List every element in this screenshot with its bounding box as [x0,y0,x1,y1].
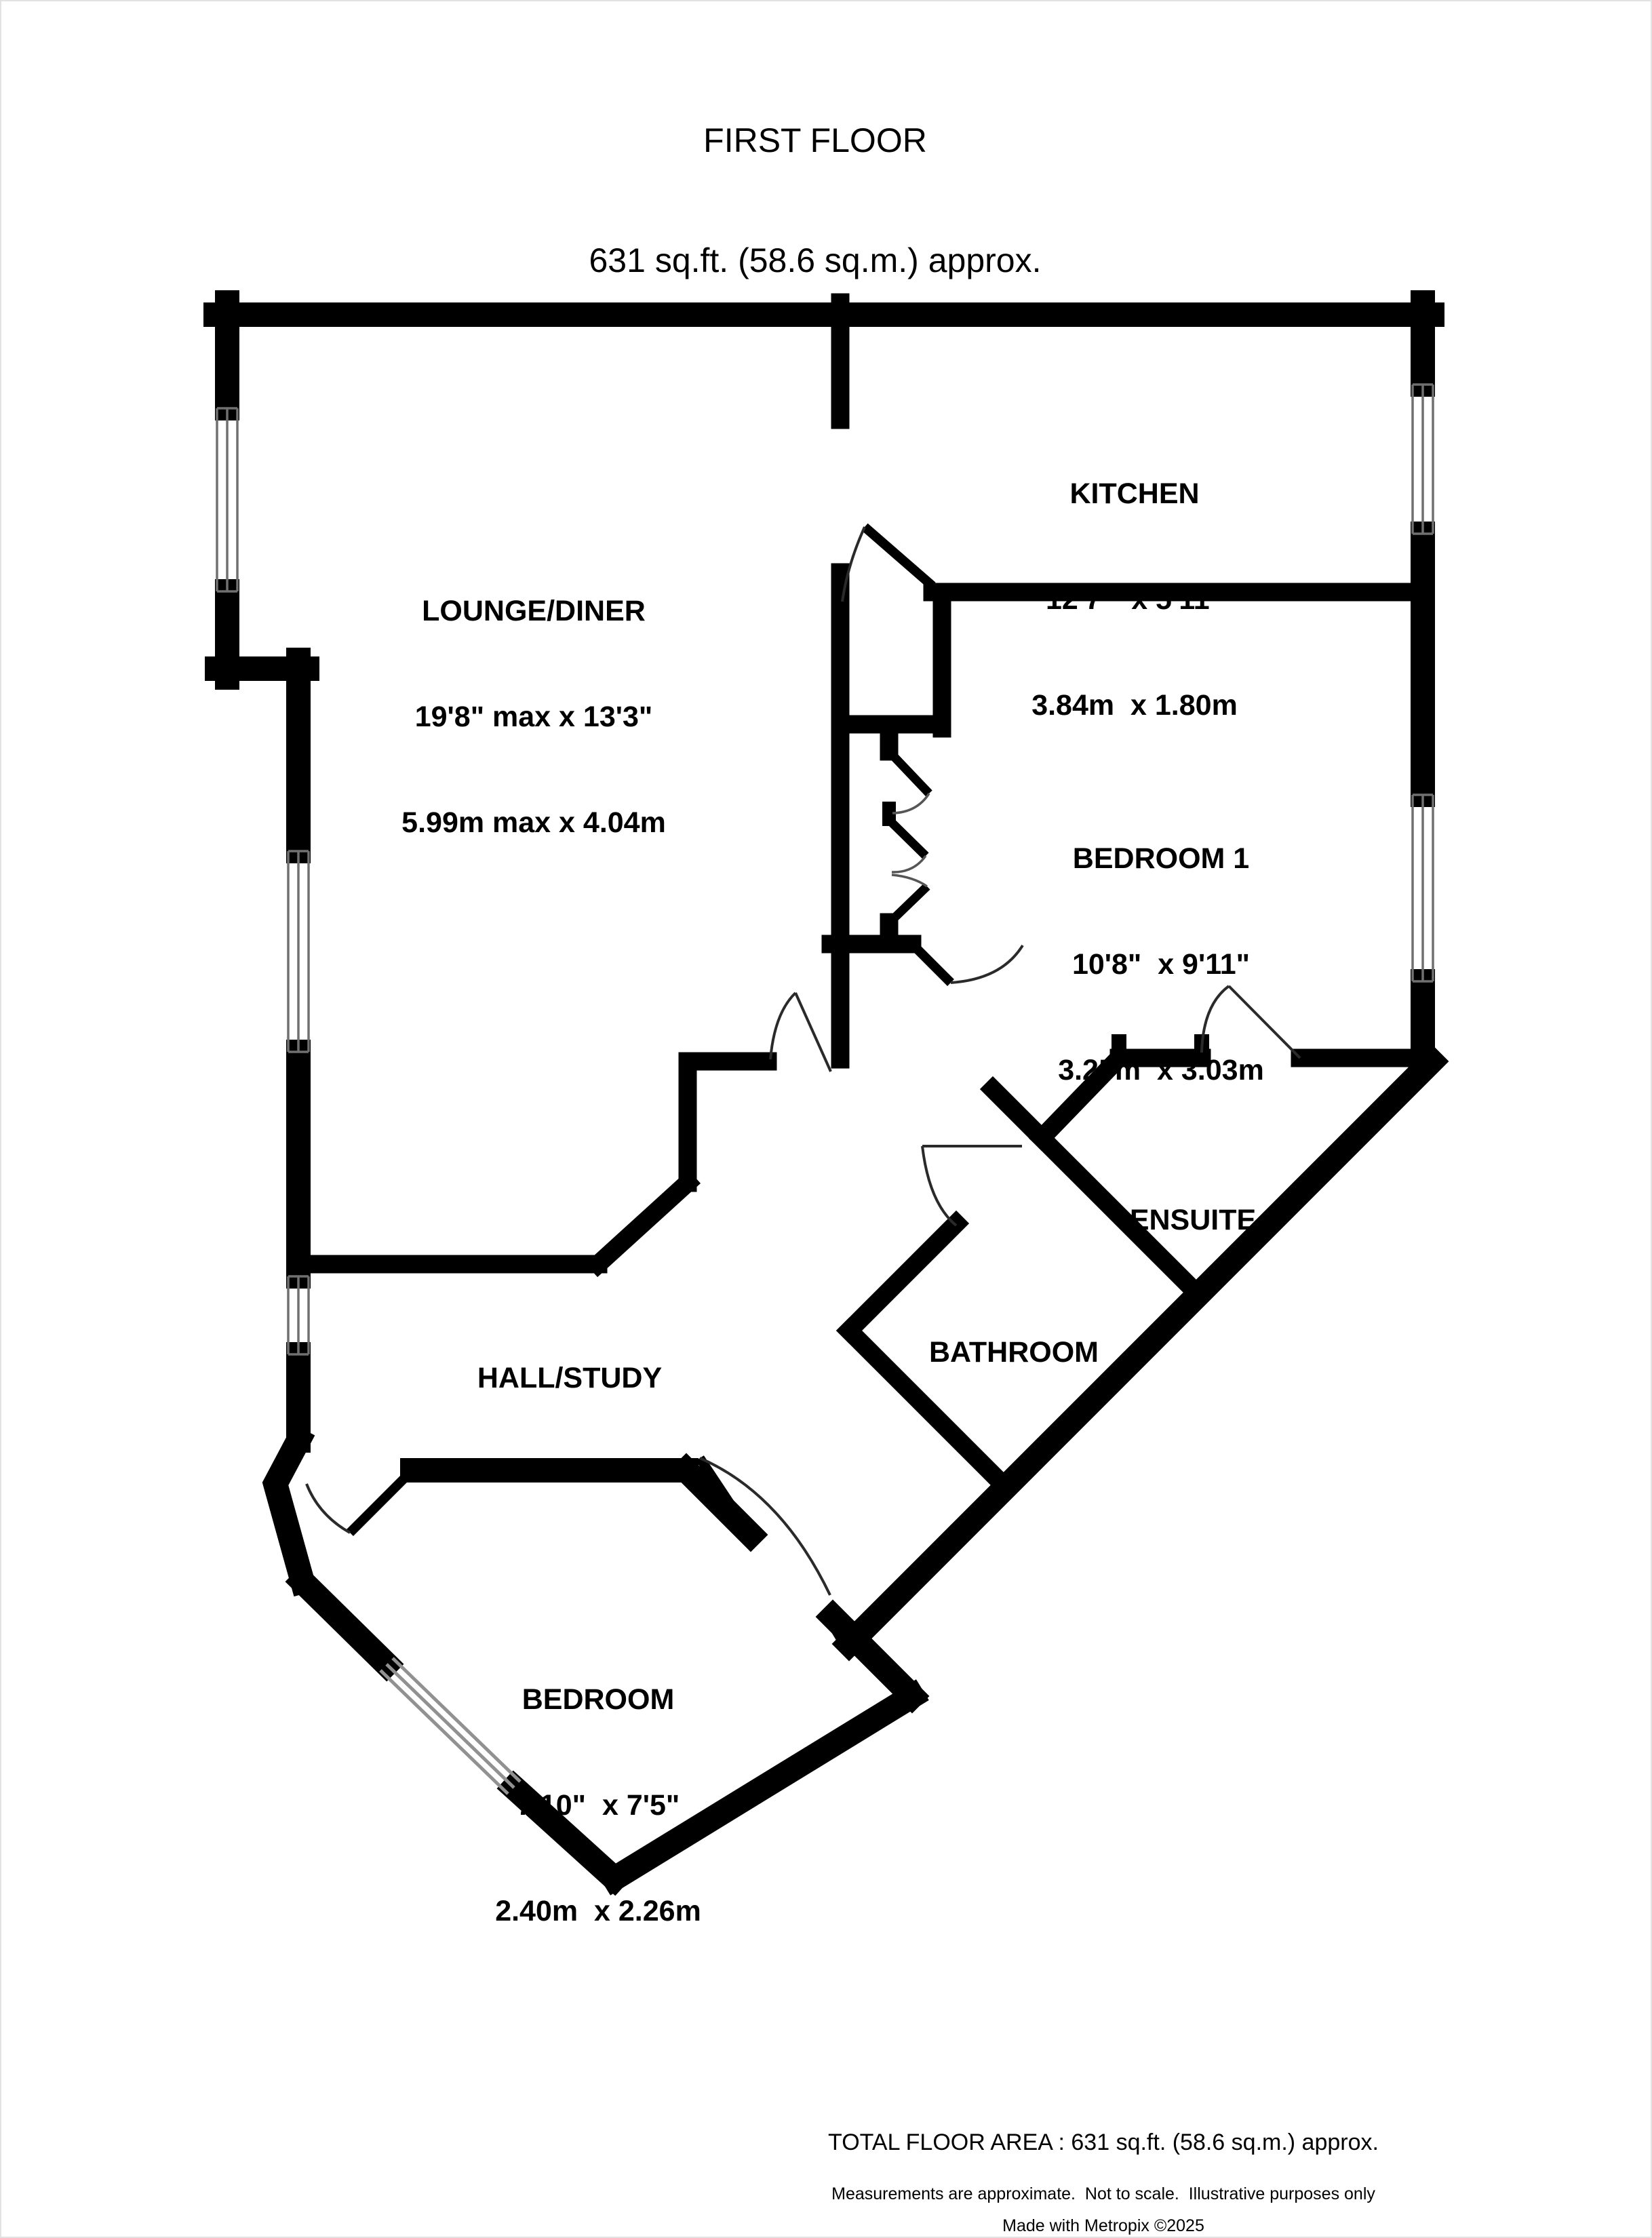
room-dims-metric: 3.25m x 3.03m [1058,1053,1264,1088]
room-label-bedroom1: BEDROOM 1 10'8" x 9'11" 3.25m x 3.03m [1058,770,1264,1158]
page-title: FIRST FLOOR [589,121,1042,161]
room-name: BEDROOM [495,1682,701,1717]
window-right-bedroom1-icon [1413,795,1433,981]
bedroom2-door-leaf-icon [350,1470,412,1533]
room-label-kitchen: KITCHEN 12'7" x 5'11" 3.84m x 1.80m [1031,406,1238,793]
footer-total-area: TOTAL FLOOR AREA : 631 sq.ft. (58.6 sq.m… [828,2129,1379,2156]
bathroom-door-swing-icon [922,1146,956,1225]
room-dims-metric: 3.84m x 1.80m [1031,688,1238,723]
floorplan-page: FIRST FLOOR 631 sq.ft. (58.6 sq.m.) appr… [0,0,1652,2238]
wall-junction-stub [993,1089,1042,1138]
room-dims-imperial: 10'8" x 9'11" [1058,947,1264,982]
wall-lounge-hall-chamfer [598,1183,688,1264]
room-label-bathroom: BATHROOM [929,1264,1099,1440]
footer-disclaimer: Measurements are approximate. Not to sca… [831,2184,1375,2204]
room-dims-imperial: 19'8" max x 13'3" [401,699,666,734]
room-label-ensuite: ENSUITE [1130,1132,1256,1308]
window-left-middle-icon [288,851,309,1052]
window-right-kitchen-icon [1413,385,1433,534]
bedroom2-door-swing-icon [307,1484,350,1533]
room-dims-imperial: 12'7" x 5'11" [1031,582,1238,617]
hall-lounge-door-swing-icon [770,993,795,1059]
footer-credit: Made with Metropix ©2025 [1002,2216,1204,2236]
room-name: HALL/STUDY [477,1360,662,1396]
room-dims-metric: 2.40m x 2.26m [495,1893,701,1929]
room-name: KITCHEN [1031,476,1238,511]
front-door-swing-icon [700,1458,830,1595]
lobby-door-leaf-icon [912,944,951,983]
hall-lounge-door-leaf-icon [795,993,831,1072]
room-dims-imperial: 7'10" x 7'5" [495,1788,701,1823]
room-label-hall: HALL/STUDY [477,1290,662,1466]
room-dims-metric: 5.99m max x 4.04m [401,805,666,840]
room-name: ENSUITE [1130,1202,1256,1238]
page-title-block: FIRST FLOOR 631 sq.ft. (58.6 sq.m.) appr… [589,41,1042,361]
room-name: LOUNGE/DINER [401,593,666,629]
room-name: BATHROOM [929,1335,1099,1370]
window-left-upper-icon [217,408,237,591]
room-label-bedroom2: BEDROOM 7'10" x 7'5" 2.40m x 2.26m [495,1611,701,1999]
room-label-lounge: LOUNGE/DINER 19'8" max x 13'3" 5.99m max… [401,523,666,911]
lobby-door-swing-icon [951,945,1023,983]
page-subtitle: 631 sq.ft. (58.6 sq.m.) approx. [589,241,1042,281]
bifold-door-icon [888,751,929,922]
kitchen-door-leaf-icon [865,527,932,586]
wall-left-jog [275,1440,302,1582]
room-name: BEDROOM 1 [1058,841,1264,876]
